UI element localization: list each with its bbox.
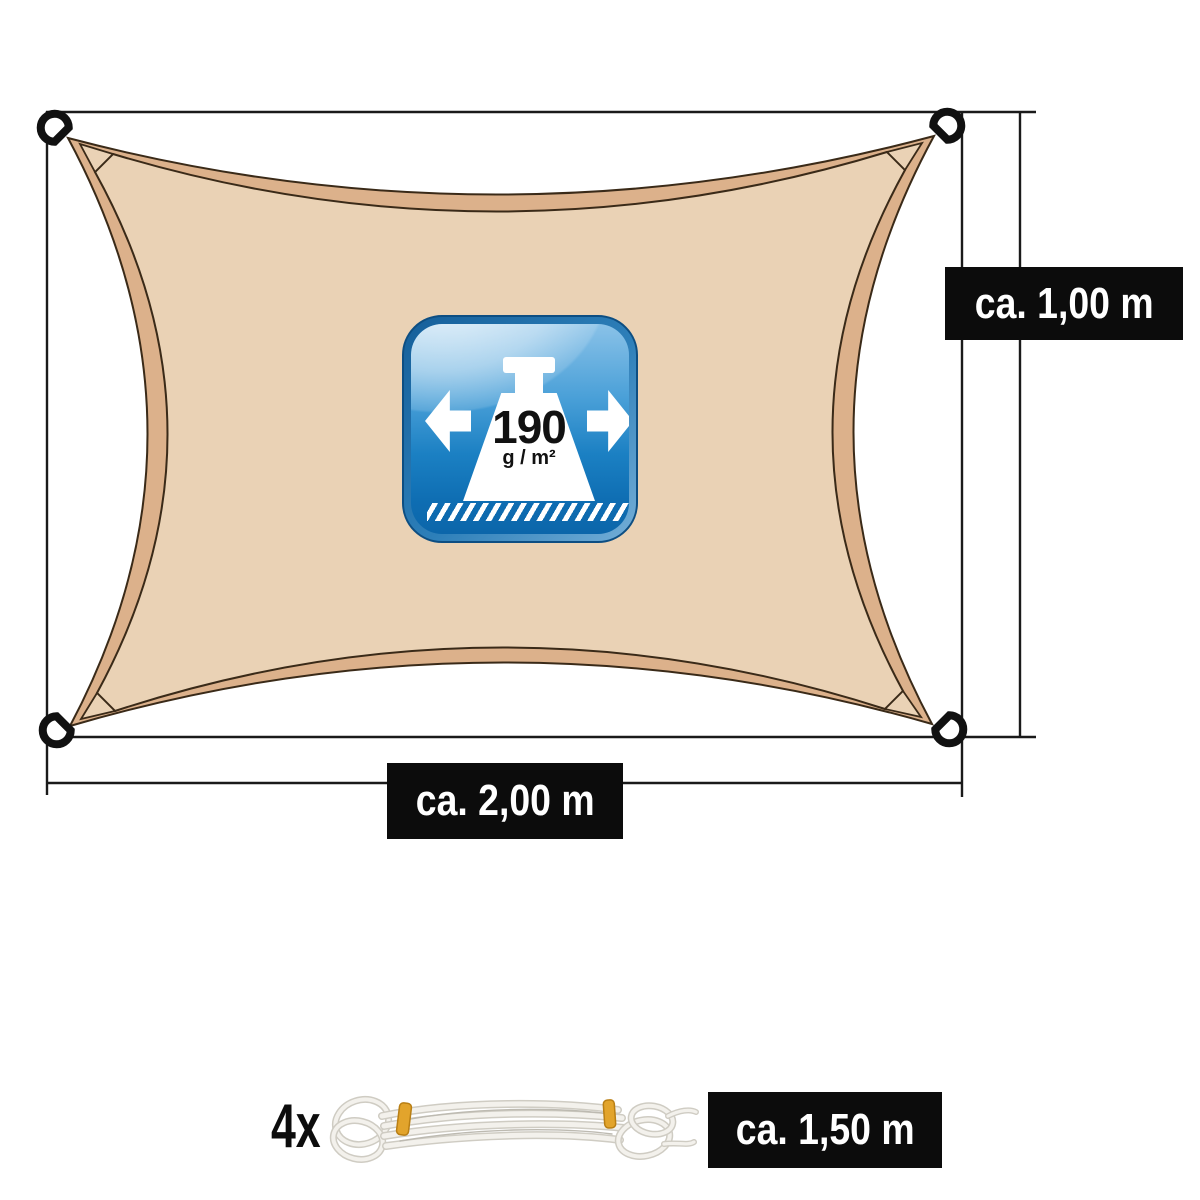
d-ring-icon (932, 712, 969, 749)
rope-length-text: ca. 1,50 m (736, 1105, 915, 1155)
d-ring-icon (35, 108, 72, 145)
d-ring-icon (37, 713, 74, 750)
weight-unit: g / m² (502, 447, 555, 469)
width-dimension-label: ca. 2,00 m (387, 763, 623, 839)
rope-length-label: ca. 1,50 m (708, 1092, 942, 1168)
rope-strands (382, 1104, 624, 1146)
weight-badge: 190 g / m² (402, 315, 638, 543)
height-dimension-text: ca. 1,00 m (975, 279, 1154, 329)
rope-count-label: 4x (271, 1096, 317, 1158)
sail-diagram-canvas (0, 0, 1200, 1200)
hatched-ground-icon (427, 503, 629, 521)
weight-badge-face: 190 g / m² (411, 324, 629, 534)
weight-value: 190 (492, 407, 566, 447)
rope-band-right (603, 1100, 616, 1129)
weight-icon-neck (515, 369, 543, 397)
product-diagram: 190 g / m² ca. 1,00 m ca. 2,00 m ca. 1,5… (0, 0, 1200, 1200)
height-dimension-label: ca. 1,00 m (945, 267, 1183, 340)
rope-illustration (329, 1093, 696, 1165)
rope-right-loops (615, 1103, 696, 1161)
width-dimension-text: ca. 2,00 m (416, 776, 595, 826)
